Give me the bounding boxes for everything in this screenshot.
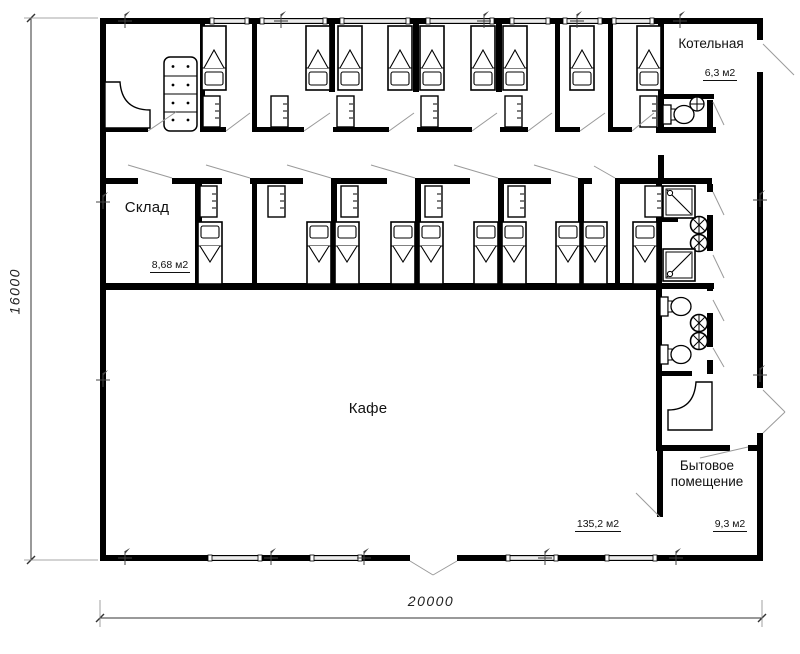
room-label-utility: Бытовое помещение — [655, 458, 759, 490]
window-end — [510, 18, 514, 24]
window-end — [563, 18, 567, 24]
room-area-storage-value: 8,68 м2 — [150, 259, 190, 273]
pillow — [506, 72, 524, 85]
bed-icon — [570, 26, 594, 90]
wall — [417, 127, 472, 132]
double-sink-icon — [691, 315, 708, 350]
bed-icon — [306, 26, 330, 90]
sofa-button — [172, 84, 175, 87]
wall — [707, 184, 713, 192]
shower-icon — [663, 249, 695, 281]
axis-marker-flag — [281, 11, 286, 17]
bed-icon — [474, 222, 498, 284]
bed-icon — [335, 222, 359, 284]
door-opening — [757, 388, 763, 433]
dimension-label-vertical: 16000 — [7, 216, 24, 366]
door-swing-icon — [713, 300, 724, 321]
toilet-icon — [663, 105, 694, 124]
bed-icon — [391, 222, 415, 284]
pillow — [341, 72, 359, 85]
window-end — [323, 18, 327, 24]
sofa-button — [187, 102, 190, 105]
pillow — [310, 226, 328, 238]
sofa-button — [187, 119, 190, 122]
bed-icon — [419, 222, 443, 284]
window-end — [506, 555, 510, 561]
nightstand-icon — [341, 186, 358, 217]
door-swing-icon — [454, 165, 498, 178]
room-label-cafe: Кафе — [288, 400, 448, 418]
door-swing-icon — [206, 165, 250, 178]
window-end — [210, 18, 214, 24]
door-swing-icon — [594, 166, 615, 178]
toilet-icon — [660, 297, 691, 316]
nightstand-icon — [421, 96, 438, 127]
toilet-bowl — [671, 346, 691, 364]
wall — [615, 184, 620, 290]
wall — [413, 24, 419, 92]
pillow — [477, 226, 495, 238]
shower-drain — [667, 190, 672, 195]
wall — [656, 445, 730, 451]
door-swing-icon — [433, 561, 457, 575]
axis-marker-flag — [125, 11, 130, 17]
wall — [252, 24, 257, 131]
bed-icon — [503, 26, 527, 90]
wall — [707, 100, 713, 127]
toilet-bowl — [671, 298, 691, 316]
wall — [252, 184, 257, 290]
room-label-storage: Склад — [100, 199, 194, 217]
pillow — [391, 72, 409, 85]
room-area-cafe-value: 135,2 м2 — [575, 518, 621, 532]
window-end — [546, 18, 550, 24]
pillow — [423, 72, 441, 85]
door-swing-icon — [763, 412, 785, 433]
axis-marker-flag — [484, 11, 489, 17]
window-end — [650, 18, 654, 24]
wall — [555, 24, 560, 131]
bed-icon — [420, 26, 444, 90]
axis-marker-flag — [125, 548, 130, 554]
door-swing-icon — [763, 390, 785, 412]
bed-icon — [556, 222, 580, 284]
room-area-utility-value: 9,3 м2 — [713, 518, 748, 532]
room-area-boiler: 6,3 м2 — [680, 67, 760, 79]
door-swing-icon — [226, 113, 250, 131]
door-swing-icon — [128, 165, 172, 178]
toilet-icon — [660, 345, 691, 364]
wall — [707, 360, 713, 374]
window-end — [426, 18, 430, 24]
door-swing-icon — [472, 113, 497, 131]
pillow — [559, 226, 577, 238]
room-area-utility: 9,3 м2 — [695, 518, 765, 530]
door-swing-icon — [371, 165, 415, 178]
wall — [252, 127, 304, 132]
wall — [578, 178, 592, 184]
wall — [555, 127, 580, 132]
wall — [658, 155, 664, 183]
room-label-boiler: Котельная — [662, 36, 760, 52]
nightstand-icon — [505, 96, 522, 127]
sofa-icon — [164, 57, 197, 131]
room-area-cafe: 135,2 м2 — [548, 518, 648, 530]
bed-icon — [583, 222, 607, 284]
bed-icon — [202, 26, 226, 90]
nightstand-icon — [200, 186, 217, 217]
door-swing-icon — [713, 255, 724, 278]
nightstand-icon — [425, 186, 442, 217]
nightstand-icon — [508, 186, 525, 217]
window-end — [554, 555, 558, 561]
door-swing-icon — [763, 44, 794, 75]
window-end — [258, 555, 262, 561]
pillow — [505, 226, 523, 238]
sofa-button — [187, 65, 190, 68]
wall — [415, 178, 470, 184]
wall — [331, 178, 387, 184]
sofa-button — [172, 65, 175, 68]
wall — [500, 127, 528, 132]
axis-marker-flag — [676, 548, 681, 554]
nightstand-icon — [203, 96, 220, 127]
pillow — [309, 72, 327, 85]
nightstand-icon — [645, 186, 662, 217]
door-swing-icon — [528, 113, 552, 131]
sofa-button — [172, 102, 175, 105]
wall — [656, 127, 716, 133]
axis-marker-flag — [271, 548, 276, 554]
window-end — [208, 555, 212, 561]
door-swing-icon — [534, 165, 578, 178]
bed-icon — [388, 26, 412, 90]
pillow — [201, 226, 219, 238]
window-end — [310, 555, 314, 561]
door-swing-icon — [287, 165, 331, 178]
wall — [498, 178, 551, 184]
pillow — [636, 226, 654, 238]
wall — [250, 178, 303, 184]
door-swing-icon — [636, 493, 660, 517]
door-swing-icon — [713, 192, 724, 215]
door-swing-icon — [580, 113, 605, 131]
window-end — [598, 18, 602, 24]
sink-icon — [690, 97, 704, 111]
nightstand-icon — [337, 96, 354, 127]
toilet-tank — [660, 297, 668, 316]
window-end — [605, 555, 609, 561]
wall — [707, 283, 713, 291]
room-area-storage: 8,68 м2 — [123, 259, 217, 271]
pillow — [474, 72, 492, 85]
double-sink-icon — [691, 217, 708, 252]
door-opening — [410, 555, 457, 561]
pillow — [338, 226, 356, 238]
toilet-tank — [660, 345, 668, 364]
floor-plan: Котельная 6,3 м2 Склад 8,68 м2 Кафе 135,… — [0, 0, 800, 654]
nightstand-icon — [271, 96, 288, 127]
wall — [608, 24, 613, 131]
window-end — [653, 555, 657, 561]
axis-marker-flag — [364, 548, 369, 554]
wall — [656, 283, 714, 289]
bed-icon — [502, 222, 526, 284]
bed-icon — [198, 222, 222, 284]
pillow — [422, 226, 440, 238]
wall — [496, 24, 502, 92]
axis-marker-flag — [577, 11, 582, 17]
wall — [658, 94, 714, 99]
toilet-tank — [663, 105, 671, 124]
window-end — [245, 18, 249, 24]
window-end — [406, 18, 410, 24]
nightstand-icon — [268, 186, 285, 217]
wall — [748, 445, 759, 451]
wall — [100, 178, 138, 184]
wall — [608, 127, 632, 132]
shower-drain — [667, 271, 672, 276]
axis-marker-flag — [680, 11, 685, 17]
door-swing-icon — [410, 561, 433, 575]
door-swing-icon — [389, 113, 414, 131]
pillow — [205, 72, 223, 85]
counter-icon — [668, 382, 712, 430]
bed-icon — [307, 222, 331, 284]
reception-desk-icon — [105, 82, 150, 128]
sofa-button — [172, 119, 175, 122]
shower-icon — [663, 186, 695, 218]
bed-icon — [637, 26, 661, 90]
sofa-button — [187, 84, 190, 87]
door-swing-icon — [713, 102, 724, 125]
axis-marker-flag — [545, 548, 550, 554]
bed-icon — [338, 26, 362, 90]
pillow — [394, 226, 412, 238]
floor-plan-drawing — [0, 0, 800, 654]
wall — [333, 127, 389, 132]
pillow — [586, 226, 604, 238]
window-end — [612, 18, 616, 24]
window-end — [260, 18, 264, 24]
room-area-boiler-value: 6,3 м2 — [703, 67, 738, 81]
bed-icon — [471, 26, 495, 90]
pillow — [640, 72, 658, 85]
bed-icon — [633, 222, 657, 284]
dimension-label-horizontal: 20000 — [331, 593, 531, 610]
wall — [200, 127, 226, 132]
window-end — [340, 18, 344, 24]
pillow — [573, 72, 591, 85]
door-swing-icon — [713, 348, 724, 367]
door-swing-icon — [304, 113, 330, 131]
